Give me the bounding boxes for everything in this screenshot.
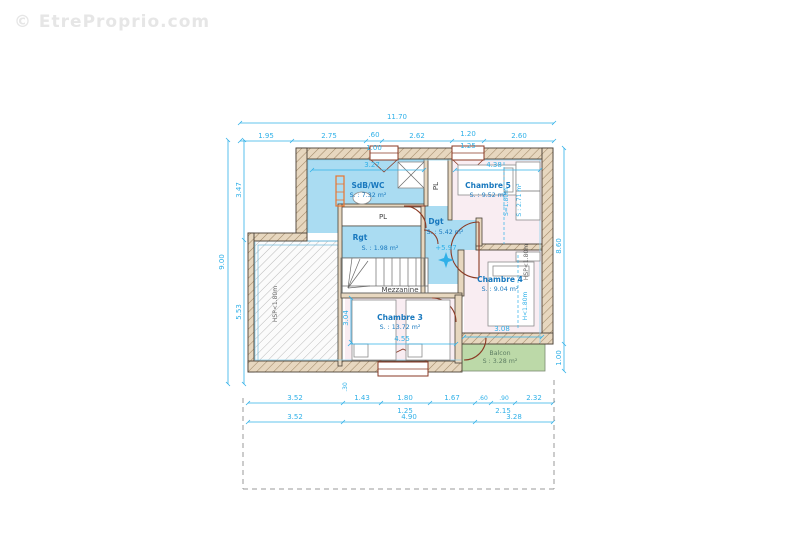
wall-left-lower — [248, 233, 254, 372]
dim-top-sub-1: 1.00 — [366, 144, 382, 152]
chambre4-area: S. : 9.04 m² — [482, 286, 519, 293]
balcon-name: Balcon — [489, 350, 510, 357]
dim-wall-30: .30 — [342, 382, 349, 392]
wall-ch5-ch4 — [476, 244, 542, 250]
mezzanine-label: Mezzanine — [381, 286, 418, 294]
h-ch4-label: H<1.80m — [522, 291, 529, 320]
dim-top-3: .60 — [368, 131, 379, 139]
chambre3-name: Chambre 3 — [377, 313, 423, 322]
dim-top-4: 2.62 — [409, 132, 425, 140]
dim-bot2-2: 4.90 — [401, 413, 417, 421]
rgt-area: S. : 1.98 m² — [362, 245, 399, 252]
dim-ch5-width: 4.38 — [486, 161, 502, 169]
wall-left-upper — [296, 148, 307, 240]
dim-left-total: 9.00 — [218, 254, 226, 270]
sdb-name: SdB/WC — [351, 181, 384, 190]
wall-bottom — [248, 361, 462, 372]
wall-top — [296, 148, 553, 159]
dim-sdb-width: 3.27 — [364, 161, 380, 169]
s271-label: S : 2.71 m² — [516, 183, 523, 217]
slope-zone: HSP<1.80m — [254, 241, 342, 366]
balcon-area: S : 3.28 m² — [483, 358, 518, 365]
dim-top-sub-2: 1.25 — [460, 142, 476, 150]
floorplan-page: © EtreProprio.com — [0, 0, 809, 546]
dim-top-5: 1.20 — [460, 130, 476, 138]
dim-ch3-width: 4.55 — [394, 335, 410, 343]
rgt-floor — [341, 226, 424, 258]
dim-top-1: 1.95 — [258, 132, 274, 140]
chambre5-name: Chambre 5 — [465, 181, 511, 190]
wall-chambre4-bottom — [458, 333, 553, 344]
dim-bot2-1: 3.52 — [287, 413, 303, 421]
dim-top-6: 2.60 — [511, 132, 527, 140]
part-pl-left — [424, 159, 428, 206]
shower — [398, 162, 424, 188]
part-ch3-right — [455, 295, 462, 363]
rgt-name: Rgt — [353, 233, 368, 242]
wall-right — [542, 148, 553, 344]
dim-left-1: 3.47 — [235, 182, 243, 198]
dim-top-total: 11.70 — [387, 113, 407, 121]
level-label: +5.97 — [435, 244, 456, 252]
dim-right-1: 8.60 — [555, 238, 563, 254]
sdb-area: S. : 7.32 m² — [350, 192, 387, 199]
pillow2-chambre3 — [408, 344, 422, 357]
dim-bot1-2: 1.43 — [354, 394, 370, 402]
chambre3-area: S. : 13.72 m² — [380, 324, 421, 331]
chambre4-name: Chambre 4 — [477, 275, 523, 284]
dim-bot1-4: 1.67 — [444, 394, 460, 402]
dgt-area: S. : 5.42 m² — [427, 229, 464, 236]
dgt-name: Dgt — [428, 217, 444, 226]
wall-mid-left — [248, 233, 307, 241]
dim-bot1-7: 2.32 — [526, 394, 542, 402]
part-pl-right — [448, 159, 452, 220]
pillow1-chambre3 — [354, 344, 368, 357]
chambre5-area: S. : 9.52 m² — [470, 192, 507, 199]
floorplan-drawing: HSP<1.80m — [0, 0, 809, 546]
dim-bot1-5: .60 — [478, 395, 488, 402]
dim-ch3-height: 3.04 — [342, 310, 350, 326]
pl-strip-label: PL — [432, 182, 440, 190]
dim-bot1-3: 1.80 — [397, 394, 413, 402]
dim-left-2: 5.53 — [235, 304, 243, 320]
dim-top-2: 2.75 — [321, 132, 337, 140]
pl-closet-label: PL — [379, 213, 387, 221]
dim-bot2-3: 3.28 — [506, 413, 522, 421]
dim-bot1-1: 3.52 — [287, 394, 303, 402]
hsp-right-label: HSP<1.80m — [523, 244, 530, 280]
dim-right-2: 1.00 — [555, 350, 563, 366]
dim-ch4-width: 3.08 — [494, 325, 510, 333]
hsp-left-label: HSP<1.80m — [272, 286, 279, 322]
dim-bot1-6: .90 — [499, 395, 509, 402]
